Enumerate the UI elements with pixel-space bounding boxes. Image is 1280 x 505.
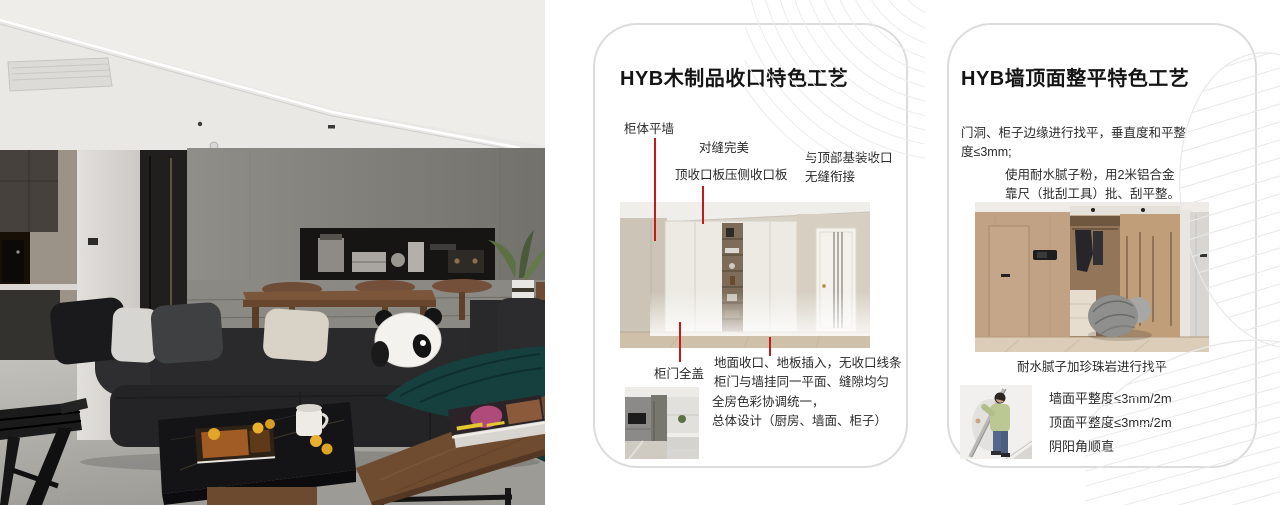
paragraph-putty-method-line1: 使用耐水腻子粉，用2米铝合金 [1005, 168, 1174, 182]
callout-ceiling-joint-line1: 与顶部基装收口 [805, 151, 893, 165]
callout-line-floor-joint [769, 337, 771, 356]
paragraph-leveling-tolerance-line2: 度≤3mm; [961, 145, 1012, 159]
card1-title: HYB木制品收口特色工艺 [620, 62, 848, 91]
callout-floor-joint-line2: 柜门与墙挂同一平面、缝隙均匀 [714, 375, 889, 389]
callout-cabinet-flush-wall: 柜体平墙 [624, 120, 674, 139]
panda-plush [371, 308, 442, 367]
callout-line-door-cover [679, 322, 681, 362]
callout-ceiling-joint: 与顶部基装收口 无缝衔接 [805, 149, 893, 187]
callout-door-full-cover: 柜门全盖 [654, 365, 704, 384]
paragraph-leveling-tolerance: 门洞、柜子边缘进行找平，垂直度和平整 度≤3mm; [961, 124, 1186, 162]
closet-room-image [975, 202, 1209, 352]
paragraph-putty-method-line2: 靠尺（批刮工具）批、刮平整。 [1005, 187, 1180, 201]
callout-ceiling-joint-line2: 无缝衔接 [805, 170, 855, 184]
living-room-photo-art [0, 0, 545, 505]
callout-floor-joint-line1: 地面收口、地板插入，无收口线条 [714, 356, 902, 370]
living-room-photo [0, 0, 545, 505]
interior-thumbnail-image [625, 387, 699, 459]
callout-top-trim-panel: 顶收口板压侧收口板 [675, 166, 788, 185]
paragraph-putty-method: 使用耐水腻子粉，用2米铝合金 靠尺（批刮工具）批、刮平整。 [1005, 166, 1180, 204]
caption-putty-perlite: 耐水腻子加珍珠岩进行找平 [1017, 358, 1167, 377]
spec-ceiling-flatness: 顶面平整度≤3mm/2m [1049, 411, 1172, 435]
spec-wall-flatness: 墙面平整度≤3mm/2m [1049, 387, 1172, 411]
page: HYB木制品收口特色工艺 柜体平墙 对缝完美 顶收口板压侧收口板 与顶部基装收口… [0, 0, 1280, 505]
card-wood-trim-craft: HYB木制品收口特色工艺 柜体平墙 对缝完美 顶收口板压侧收口板 与顶部基装收口… [593, 23, 908, 468]
spec-list: 墙面平整度≤3mm/2m 顶面平整度≤3mm/2m 阴阳角顺直 [1049, 387, 1172, 459]
card-wall-ceiling-leveling-craft: HYB墙顶面整平特色工艺 门洞、柜子边缘进行找平，垂直度和平整 度≤3mm; 使… [947, 23, 1257, 468]
note-overall-design: 总体设计（厨房、墙面、柜子） [712, 412, 887, 431]
callout-line-top-panel [702, 186, 704, 224]
callout-line-cabinet-wall [654, 138, 656, 241]
callout-floor-joint: 地面收口、地板插入，无收口线条 柜门与墙挂同一平面、缝隙均匀 [714, 354, 902, 392]
callout-perfect-seam: 对缝完美 [699, 139, 749, 158]
paragraph-leveling-tolerance-line1: 门洞、柜子边缘进行找平，垂直度和平整 [961, 126, 1186, 140]
card2-title: HYB墙顶面整平特色工艺 [961, 62, 1189, 91]
wardrobe-render-image [620, 202, 870, 348]
note-color-harmony: 全房色彩协调统一， [712, 393, 825, 412]
worker-leveling-image [960, 385, 1032, 459]
spec-corner-straightness: 阴阳角顺直 [1049, 435, 1172, 459]
